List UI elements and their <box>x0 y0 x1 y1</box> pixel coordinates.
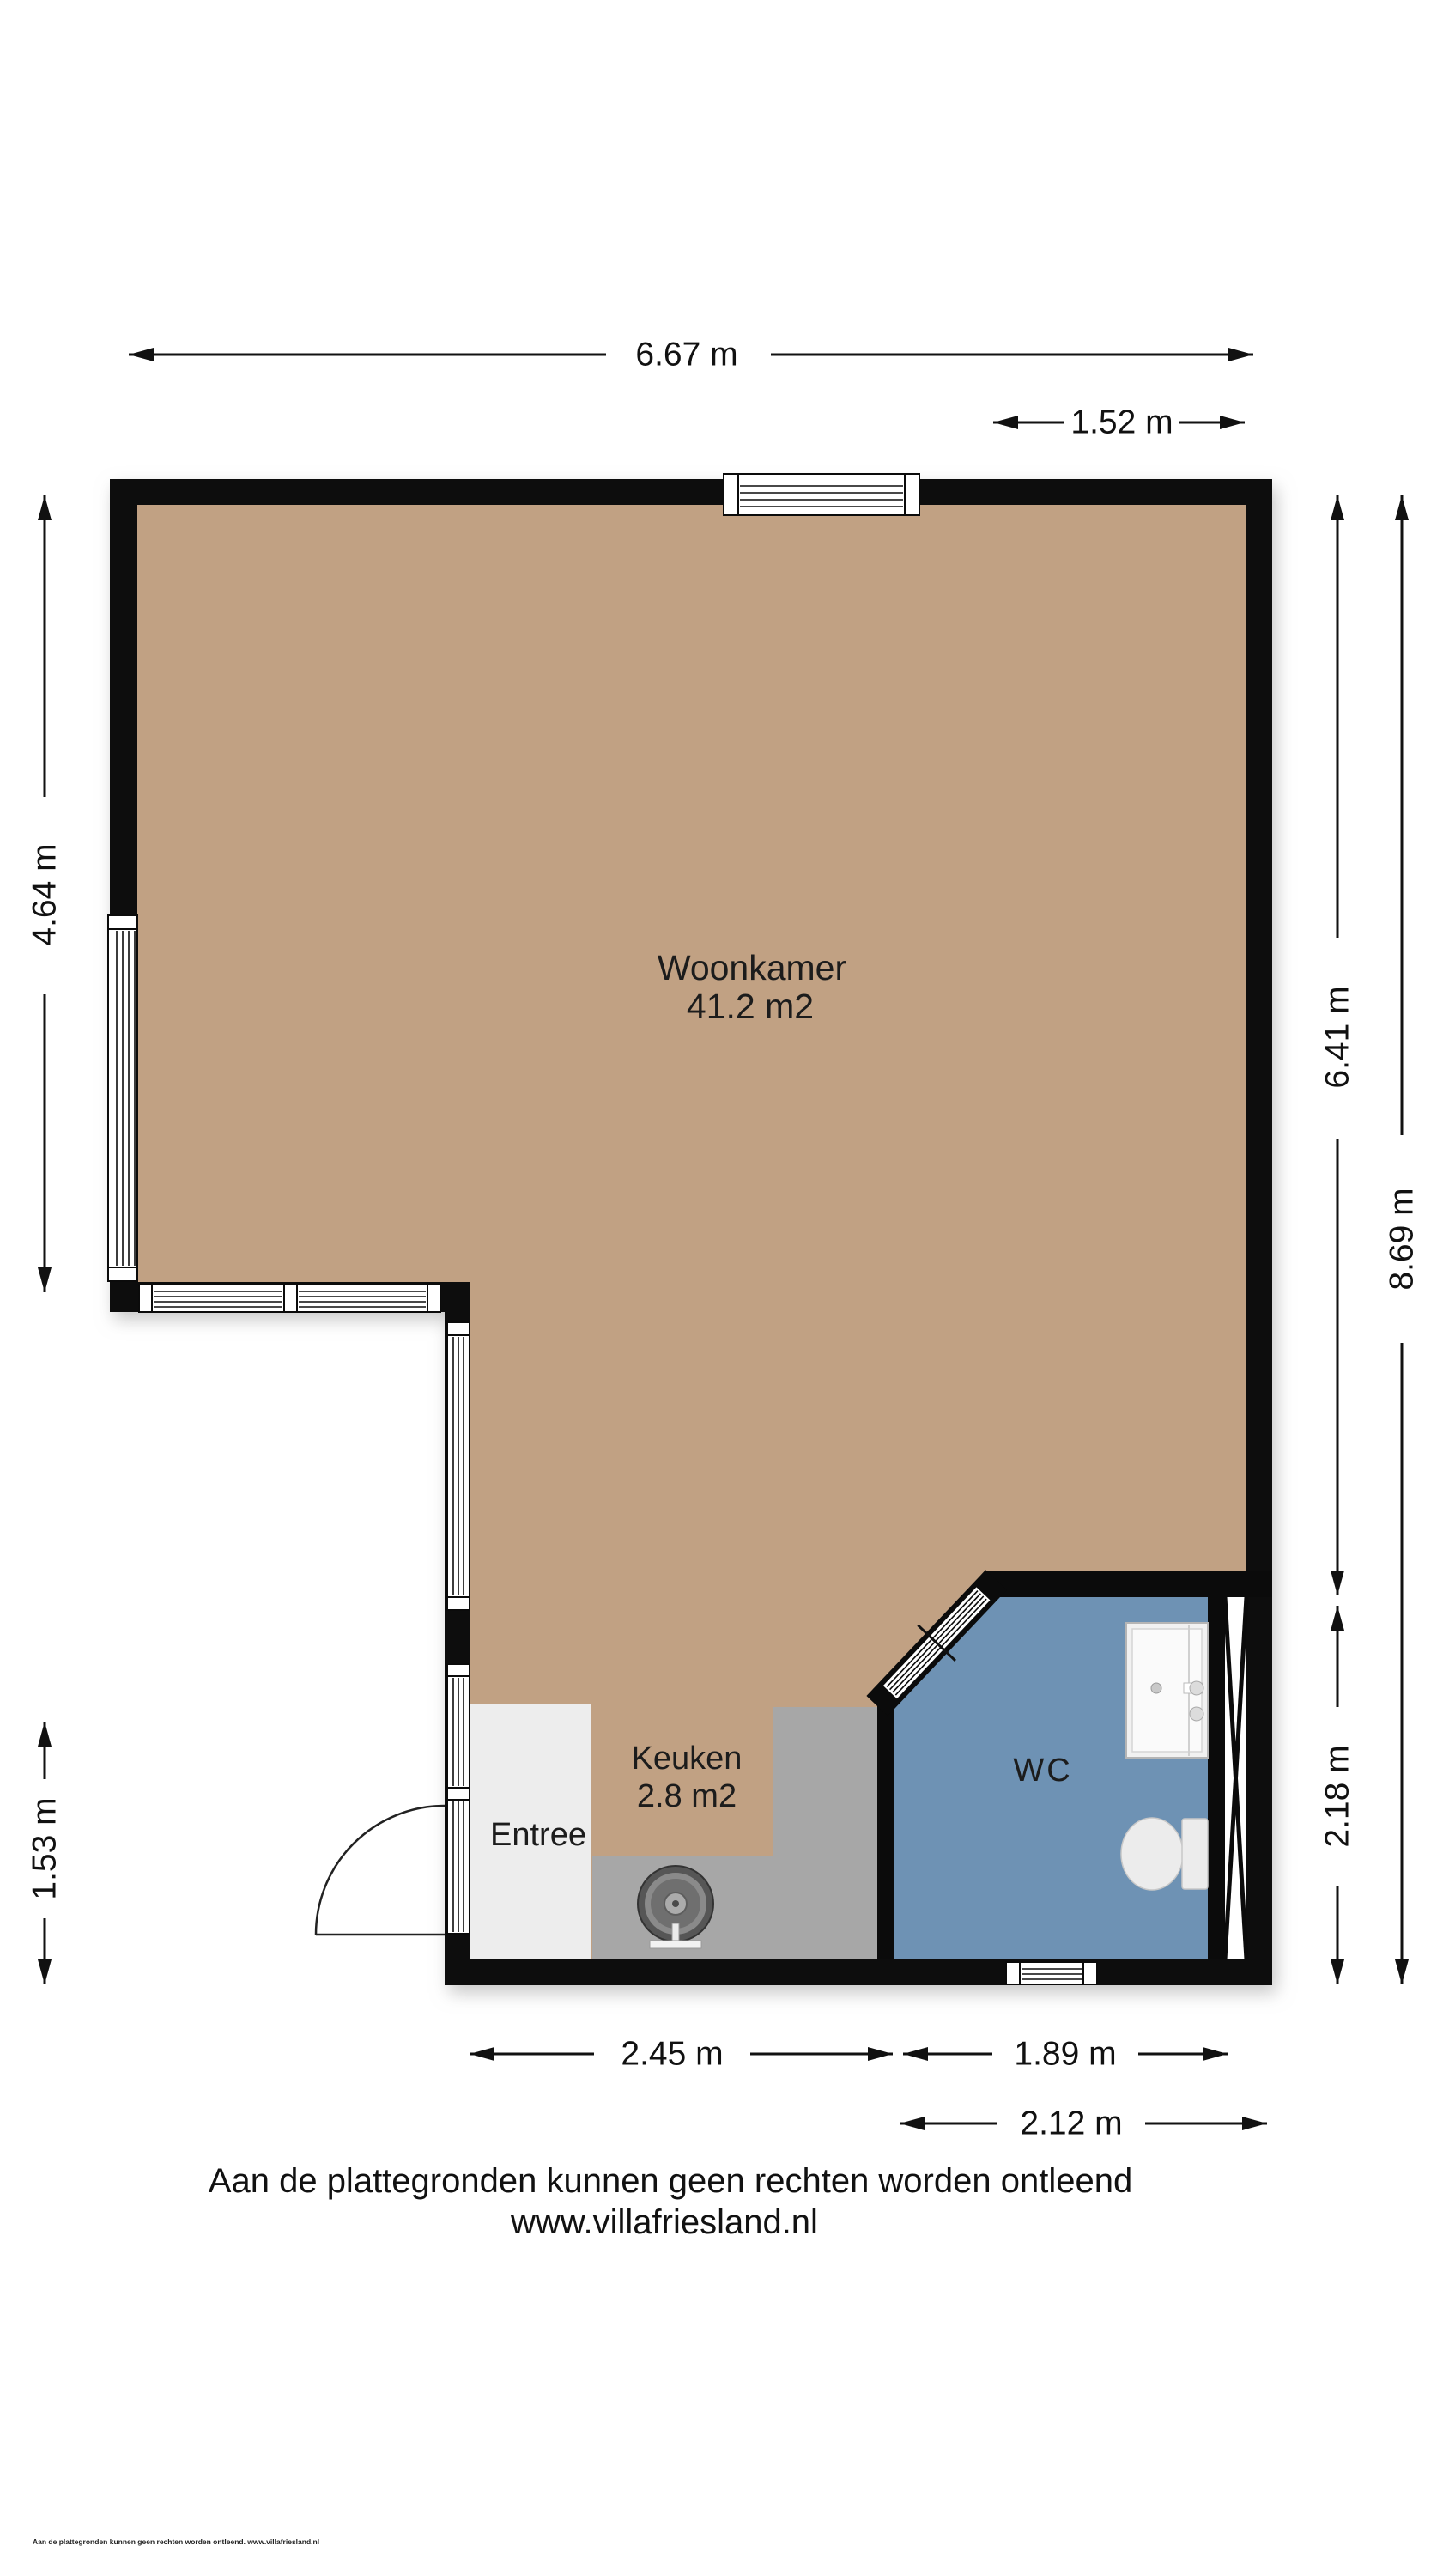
label-entree: Entree <box>490 1817 586 1853</box>
dim-left-lower-label: 1.53 m <box>27 1797 64 1899</box>
dim-top-total-label: 6.67 m <box>635 337 737 374</box>
dim-right-inner-label: 6.41 m <box>1319 986 1356 1088</box>
dim-bottom-right-label: 2.12 m <box>1020 2105 1122 2142</box>
window-bottom <box>1006 1962 1097 1984</box>
dim-right-lower-label: 2.18 m <box>1319 1745 1356 1847</box>
window-lowerleft-upper <box>447 1322 470 1610</box>
entry-door-arc <box>316 1806 445 1935</box>
label-keuken-area: 2.8 m2 <box>637 1778 737 1814</box>
shaft-left-border <box>1208 1597 1225 1959</box>
footer-fine-print: Aan de plattegronden kunnen geen rechten… <box>33 2537 319 2546</box>
label-woonkamer: Woonkamer <box>658 948 846 987</box>
window-top <box>724 474 919 515</box>
dim-bottom-middle-label: 1.89 m <box>1014 2036 1116 2073</box>
dim-right-lower: 2.18 m <box>1319 1606 1356 1984</box>
entry-door <box>316 1800 470 1935</box>
dim-bottom-right: 2.12 m <box>900 2105 1267 2142</box>
label-woonkamer-area: 41.2 m2 <box>687 987 814 1026</box>
dim-top-right-label: 1.52 m <box>1070 404 1173 441</box>
window-left <box>108 915 137 1281</box>
dim-right-inner: 6.41 m <box>1319 495 1356 1595</box>
wc-left-wall <box>877 1688 894 1959</box>
dim-bottom-middle: 1.89 m <box>903 2036 1228 2073</box>
wc-top-wall <box>985 1571 1272 1597</box>
dim-right-total: 8.69 m <box>1384 495 1421 1984</box>
dim-right-total-label: 8.69 m <box>1384 1188 1421 1290</box>
dim-bottom-left: 2.45 m <box>470 2036 893 2073</box>
footer-disclaimer: Aan de plattegronden kunnen geen rechten… <box>209 2162 1132 2200</box>
dim-left-upper-label: 4.64 m <box>27 843 64 945</box>
label-keuken: Keuken <box>632 1741 743 1777</box>
window-lowerleft-lower <box>447 1664 470 1800</box>
dim-left-lower: 1.53 m <box>27 1722 64 1984</box>
dim-left-upper: 4.64 m <box>27 495 64 1292</box>
floor-plan-svg: Woonkamer 41.2 m2 Keuken 2.8 m2 Entree W… <box>0 0 1449 2576</box>
wc-sink <box>1126 1623 1208 1758</box>
footer-website: www.villafriesland.nl <box>510 2203 818 2241</box>
wc-toilet <box>1121 1818 1208 1890</box>
dim-top-total: 6.67 m <box>129 337 1253 374</box>
dim-bottom-left-label: 2.45 m <box>621 2036 723 2073</box>
label-wc: WC <box>1013 1753 1072 1789</box>
dim-top-right: 1.52 m <box>993 404 1245 441</box>
window-notch <box>139 1284 440 1312</box>
